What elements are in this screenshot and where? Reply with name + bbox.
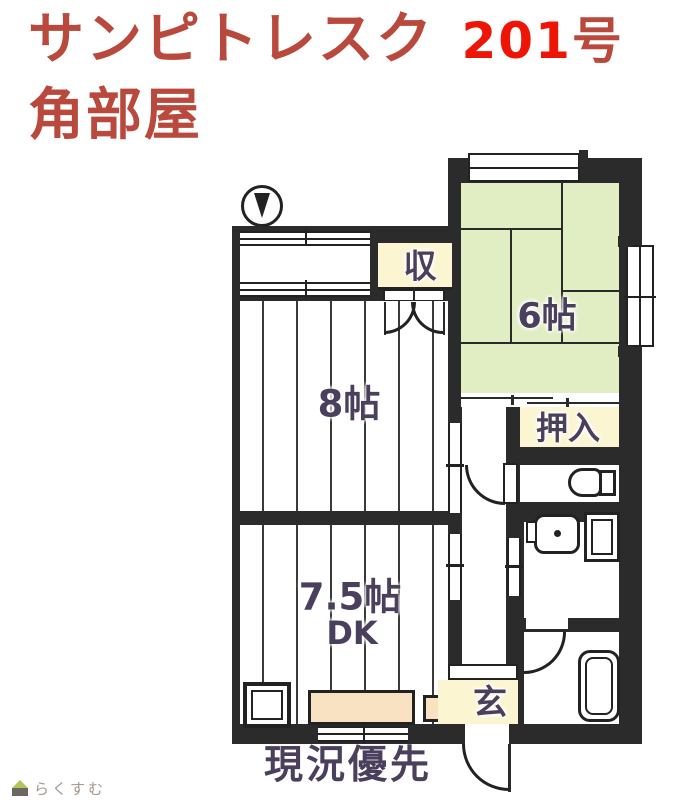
kitchen-window-icon	[318, 726, 408, 742]
room-dk-type: DK	[326, 617, 377, 649]
stove-box-icon	[243, 682, 291, 728]
bathtub-inner	[585, 657, 613, 715]
corridor	[462, 407, 506, 666]
fusuma-line	[461, 397, 553, 399]
entrance-gap	[465, 724, 509, 744]
house-icon	[12, 780, 29, 797]
washer-inner	[591, 519, 613, 555]
genkan-step	[448, 664, 518, 680]
room-6jo-label: 6帖	[517, 300, 576, 335]
room-6jo	[461, 183, 619, 393]
washer-icon	[584, 512, 620, 562]
subtitle: 角部屋	[28, 88, 202, 144]
tatami-line	[510, 228, 512, 344]
window-right-icon	[626, 245, 654, 347]
fusuma-line	[527, 402, 619, 404]
toilet-tank-icon	[599, 470, 616, 496]
toilet-icon	[568, 468, 602, 497]
window-top-cap-right	[579, 150, 588, 170]
kitchen-counter-icon	[308, 690, 415, 725]
window-top-cap-left	[459, 158, 468, 175]
balcony-window-bottom-icon	[240, 282, 370, 297]
stove-box-inner	[251, 690, 283, 720]
floor-plan-page: サンピトレスク 201号 角部屋 収 8帖 7.5帖 DK 玄	[0, 0, 681, 805]
sink-tap-icon	[526, 521, 537, 543]
room-dk-size: 7.5帖	[299, 579, 402, 616]
storage-label: 収	[404, 250, 437, 283]
sink-drain-icon	[554, 530, 561, 537]
house-body	[12, 788, 28, 796]
toilet-door-leaf	[503, 463, 518, 504]
compass-icon	[241, 185, 283, 227]
sliding-door-8jo-icon	[448, 423, 462, 513]
page-title: サンピトレスク 201号	[28, 12, 624, 68]
building-name: サンピトレスク	[28, 7, 434, 72]
entrance-door-arc	[462, 744, 509, 791]
bathtub-icon	[578, 650, 620, 722]
balcony-floor	[240, 246, 370, 282]
fusuma-band	[461, 393, 619, 407]
tatami-line	[563, 290, 619, 292]
genkan-label: 玄	[473, 686, 507, 720]
window-right-cap-top	[618, 236, 632, 247]
room-8jo-label: 8帖	[318, 386, 381, 423]
oshiire-label: 押入	[536, 412, 600, 444]
tatami-line	[461, 342, 619, 344]
unit-suffix: 号	[572, 12, 624, 70]
balcony-window-top-icon	[240, 231, 370, 246]
note-text: 現況優先	[264, 746, 432, 785]
window-top-icon	[468, 153, 580, 182]
sliding-door-washroom-icon	[507, 538, 521, 596]
double-door-leaf-right	[443, 302, 445, 335]
fusuma-tick	[511, 395, 514, 405]
north-arrow-icon	[254, 193, 270, 218]
window-right-cap-bottom	[618, 346, 632, 357]
house-roof	[12, 780, 28, 788]
tatami-line	[461, 228, 563, 230]
unit-number: 201	[462, 12, 572, 70]
sliding-door-dk-icon	[448, 534, 462, 600]
watermark-brand: らくすむ	[34, 782, 106, 797]
